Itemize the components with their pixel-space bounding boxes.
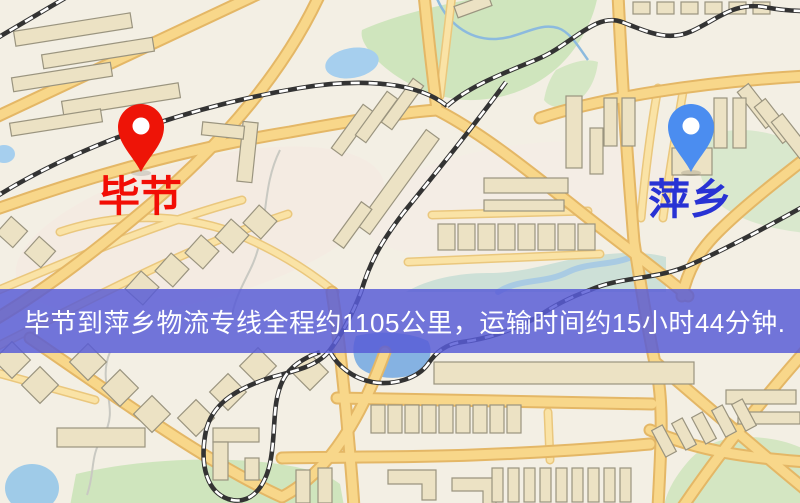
map-canvas[interactable]: 毕节 萍乡 (0, 0, 800, 503)
route-banner-text: 毕节到萍乡物流专线全程约1105公里，运输时间约15小时44分钟. (0, 289, 800, 353)
pin-hole (683, 118, 700, 135)
destination-label: 萍乡 (648, 176, 732, 223)
map-screenshot: 毕节 萍乡 毕节到萍乡物流专线全程约1105公里，运输时间约15小时44分钟. (0, 0, 800, 503)
route-banner: 毕节到萍乡物流专线全程约1105公里，运输时间约15小时44分钟. (0, 289, 800, 353)
pin-hole (133, 118, 150, 135)
origin-label: 毕节 (98, 173, 182, 220)
